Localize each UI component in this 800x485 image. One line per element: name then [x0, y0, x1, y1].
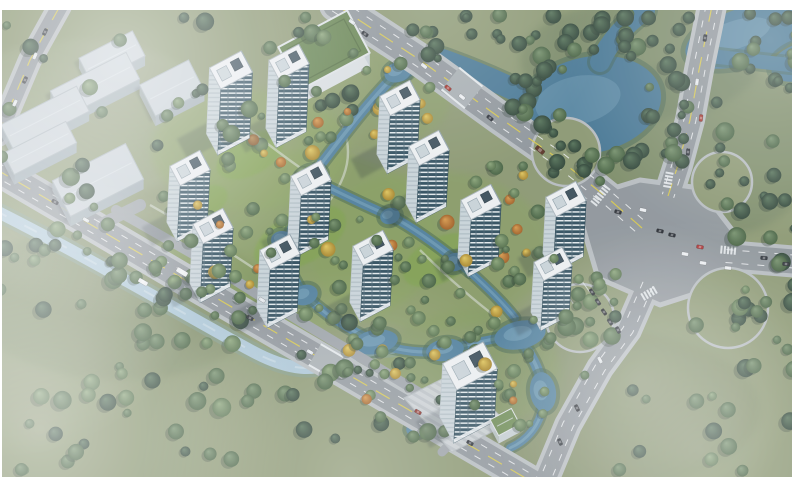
atmosphere-haze-layer	[0, 0, 800, 485]
aerial-render-canvas	[0, 0, 800, 485]
residential-masterplan-aerial-rendering	[0, 0, 800, 485]
